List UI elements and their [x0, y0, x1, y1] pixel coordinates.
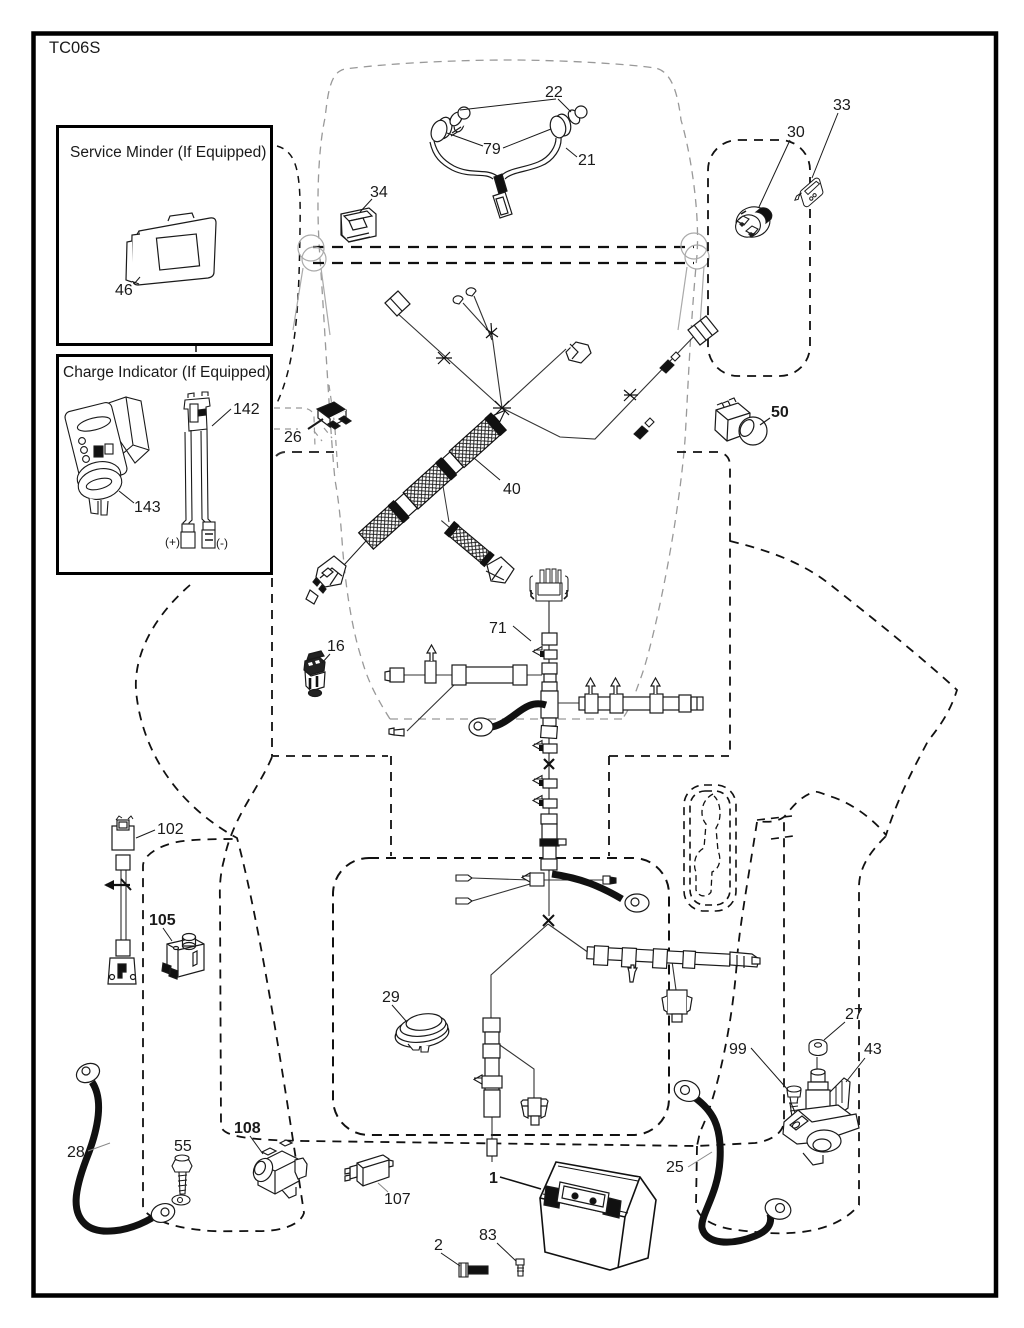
- svg-text:16: 16: [327, 638, 345, 655]
- svg-text:142: 142: [233, 401, 260, 418]
- svg-text:71: 71: [489, 620, 507, 637]
- svg-text:33: 33: [833, 97, 851, 114]
- svg-text:46: 46: [115, 282, 133, 299]
- svg-text:30: 30: [787, 124, 805, 141]
- svg-text:TC06S: TC06S: [49, 39, 100, 57]
- svg-text:40: 40: [503, 481, 521, 498]
- svg-text:107: 107: [384, 1191, 411, 1208]
- svg-text:Charge Indicator (If Equipped): Charge Indicator (If Equipped): [63, 364, 271, 381]
- svg-text:27: 27: [845, 1006, 863, 1023]
- svg-text:50: 50: [771, 404, 789, 421]
- svg-text:99: 99: [729, 1041, 747, 1058]
- svg-text:26: 26: [284, 429, 302, 446]
- svg-text:108: 108: [234, 1120, 261, 1137]
- svg-text:(+): (+): [165, 535, 180, 549]
- svg-text:43: 43: [864, 1041, 882, 1058]
- svg-text:29: 29: [382, 989, 400, 1006]
- svg-text:25: 25: [666, 1159, 684, 1176]
- svg-text:79: 79: [483, 141, 501, 158]
- svg-text:34: 34: [370, 184, 388, 201]
- svg-text:28: 28: [67, 1144, 85, 1161]
- svg-text:83: 83: [479, 1227, 497, 1244]
- svg-text:102: 102: [157, 821, 184, 838]
- svg-text:55: 55: [174, 1138, 192, 1155]
- svg-text:143: 143: [134, 499, 161, 516]
- svg-text:105: 105: [149, 912, 176, 929]
- svg-text:Service Minder (If Equipped): Service Minder (If Equipped): [70, 144, 266, 161]
- svg-text:22: 22: [545, 84, 563, 101]
- svg-text:(-): (-): [216, 536, 228, 550]
- svg-text:21: 21: [578, 152, 596, 169]
- svg-text:1: 1: [489, 1170, 498, 1187]
- svg-text:2: 2: [434, 1237, 443, 1254]
